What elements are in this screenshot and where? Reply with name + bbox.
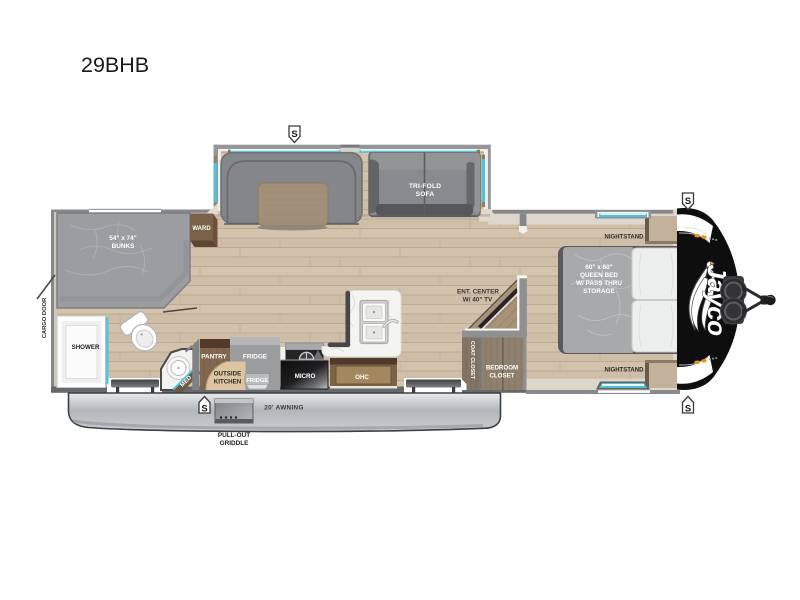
svg-text:NIGHTSTAND: NIGHTSTAND — [605, 368, 645, 374]
svg-text:20' AWNING: 20' AWNING — [264, 405, 303, 412]
svg-text:S: S — [291, 129, 297, 140]
svg-text:OHC: OHC — [355, 374, 369, 381]
svg-text:BEDROOM: BEDROOM — [486, 365, 518, 372]
svg-text:S: S — [685, 196, 691, 207]
svg-text:S: S — [201, 404, 207, 415]
svg-text:OUTSIDE: OUTSIDE — [214, 371, 242, 378]
svg-text:STORAGE: STORAGE — [583, 288, 615, 295]
svg-text:GRIDDLE: GRIDDLE — [220, 440, 249, 447]
svg-text:TRI-FOLD: TRI-FOLD — [409, 183, 441, 190]
svg-text:BUNKS: BUNKS — [112, 243, 135, 250]
svg-text:W/ 40" TV: W/ 40" TV — [463, 297, 493, 304]
svg-text:COAT CLOSET: COAT CLOSET — [469, 341, 475, 380]
svg-text:FRIDGE: FRIDGE — [243, 354, 268, 361]
svg-text:29BHB: 29BHB — [81, 53, 149, 77]
svg-text:MICRO: MICRO — [295, 373, 316, 380]
svg-text:SOFA: SOFA — [416, 191, 435, 198]
svg-text:FRIDGE: FRIDGE — [246, 378, 268, 384]
svg-text:WARD: WARD — [192, 226, 211, 232]
svg-text:54" x 74": 54" x 74" — [109, 235, 136, 242]
svg-text:NIGHTSTAND: NIGHTSTAND — [605, 235, 645, 241]
svg-text:PULL-OUT: PULL-OUT — [218, 432, 250, 439]
svg-text:60" x 80": 60" x 80" — [585, 264, 612, 271]
svg-text:CLOSET: CLOSET — [489, 373, 514, 380]
svg-text:PANTRY: PANTRY — [201, 354, 227, 361]
svg-text:CARGO DOOR: CARGO DOOR — [42, 297, 48, 338]
svg-text:QUEEN BED: QUEEN BED — [580, 272, 618, 279]
svg-text:KITCHEN: KITCHEN — [214, 379, 242, 386]
svg-text:W/ PASS THRU: W/ PASS THRU — [576, 280, 622, 287]
svg-text:S: S — [685, 404, 691, 415]
svg-text:SHOWER: SHOWER — [72, 344, 100, 351]
svg-text:ENT. CENTER: ENT. CENTER — [457, 289, 499, 296]
